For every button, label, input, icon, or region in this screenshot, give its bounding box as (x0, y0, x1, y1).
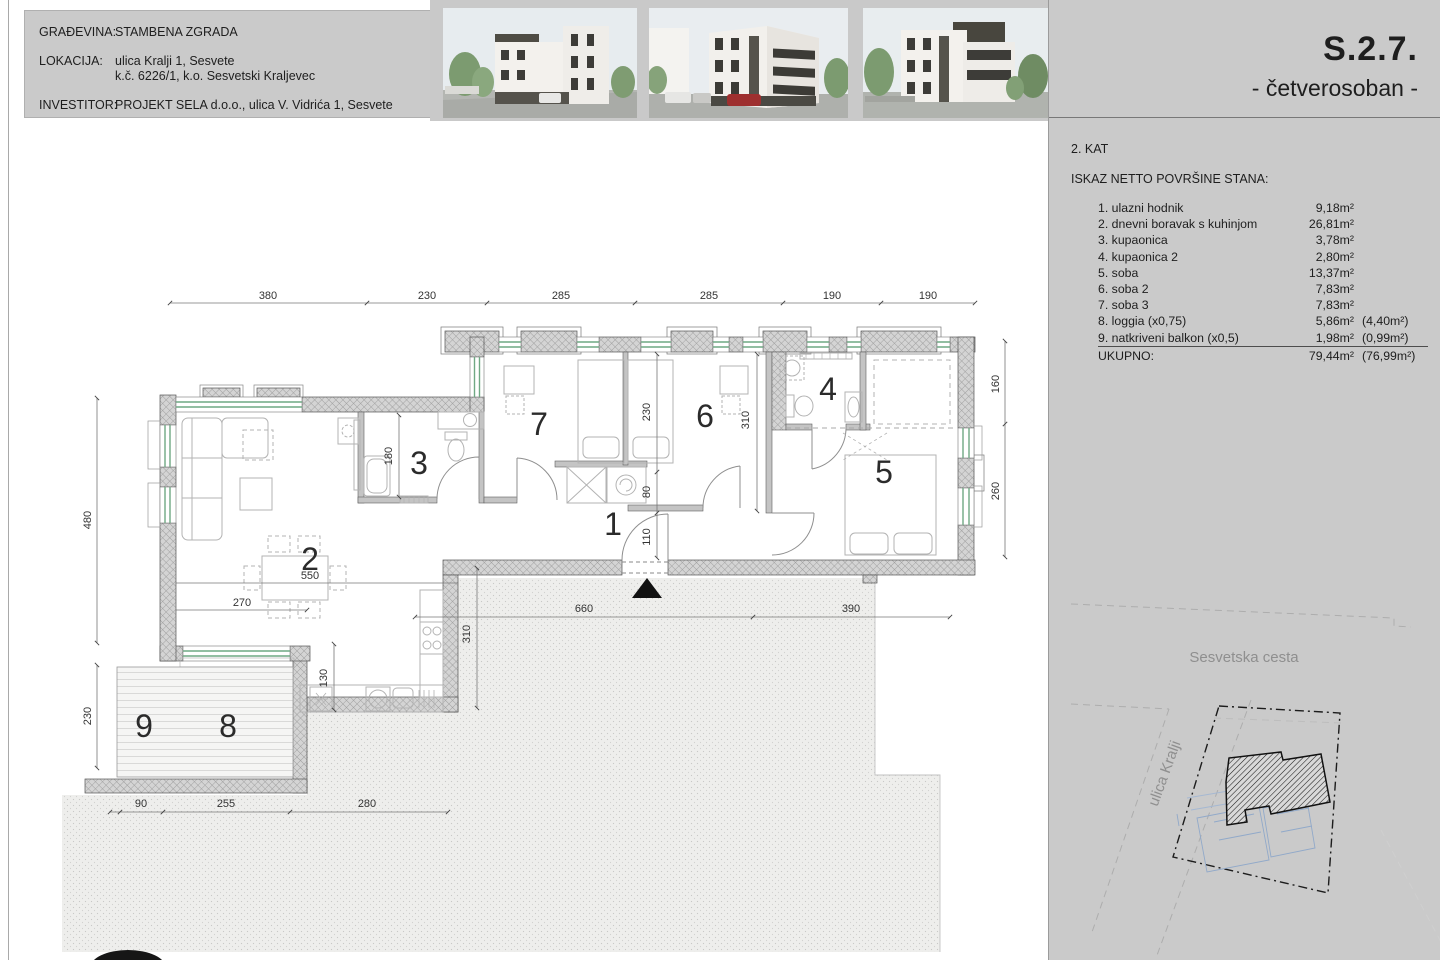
room5-furniture (843, 360, 950, 555)
table-row: 3. kupaonica3,78m² (1098, 232, 1428, 248)
tall-cabinet (338, 418, 358, 444)
site-plan: Sesvetska cesta ulica Kralji (1049, 570, 1440, 960)
sofa (182, 418, 268, 540)
svg-text:380: 380 (259, 290, 277, 302)
room-label-bath1: 3 (410, 445, 428, 481)
render-photo-2 (649, 8, 848, 118)
svg-text:660: 660 (575, 603, 593, 615)
hall-closets (567, 467, 646, 503)
investor-value: PROJEKT SELA d.o.o., ulica V. Vidrića 1,… (115, 98, 393, 113)
svg-text:285: 285 (552, 290, 570, 302)
svg-text:390: 390 (842, 603, 860, 615)
room-label-bedroom2: 6 (696, 398, 714, 434)
table-row: 4. kupaonica 22,80m² (1098, 249, 1428, 265)
svg-text:255: 255 (217, 798, 235, 810)
project-info-box: GRAĐEVINA: STAMBENA ZGRADA LOKACIJA: uli… (24, 10, 432, 118)
location-value: ulica Kralji 1, Sesvete (115, 54, 235, 69)
svg-text:310: 310 (461, 625, 473, 643)
svg-text:130: 130 (318, 669, 330, 687)
svg-text:280: 280 (358, 798, 376, 810)
room-label-bedroom1: 5 (875, 454, 893, 490)
table-row: 7. soba 37,83m² (1098, 297, 1428, 313)
location-label: LOKACIJA: (39, 54, 115, 69)
svg-text:480: 480 (82, 511, 94, 529)
table-row: 8. loggia (x0,75)5,86m²(4,40m²) (1098, 313, 1428, 329)
svg-text:285: 285 (700, 290, 718, 302)
room-label-bedroom3: 7 (530, 406, 548, 442)
floor-label: 2. KAT (1071, 142, 1108, 156)
table-row: 9. natkriveni balkon (x0,5)1,98m²(0,99m²… (1098, 330, 1428, 347)
render-strip (430, 0, 1052, 121)
room-label-loggia: 8 (219, 708, 237, 744)
street-name-left: ulica Kralji (1145, 738, 1184, 808)
svg-text:110: 110 (641, 528, 653, 546)
table-row: 1. ulazni hodnik9,18m² (1098, 200, 1428, 216)
title-panel: S.2.7. - četverosoban - 2. KAT ISKAZ NET… (1048, 0, 1440, 960)
investor-label: INVESTITOR: (39, 98, 115, 113)
area-list-title: ISKAZ NETTO POVRŠINE STANA: (1071, 172, 1269, 186)
table-total-row: UKUPNO:79,44m²(76,99m²) (1098, 348, 1428, 364)
room-label-balcony: 9 (135, 708, 153, 744)
svg-text:180: 180 (383, 447, 395, 465)
street-name-top: Sesvetska cesta (1189, 649, 1299, 666)
table-row: 5. soba13,37m² (1098, 265, 1428, 281)
area-table: 1. ulazni hodnik9,18m² 2. dnevni boravak… (1098, 200, 1428, 364)
drawing-sheet: 380 230 285 285 190 190 480 230 160 260 … (0, 0, 1440, 960)
room-label-bath2: 4 (819, 371, 837, 407)
svg-text:260: 260 (990, 482, 1002, 500)
svg-text:230: 230 (418, 290, 436, 302)
coffee-table (240, 478, 272, 510)
kitchen (300, 590, 443, 712)
svg-text:160: 160 (990, 375, 1002, 393)
svg-text:80: 80 (641, 486, 653, 498)
render-photo-3 (863, 8, 1050, 118)
floor-plan: 380 230 285 285 190 190 480 230 160 260 … (0, 0, 1045, 960)
table-row: 6. soba 27,83m² (1098, 281, 1428, 297)
render-photo-1 (443, 8, 637, 118)
svg-text:270: 270 (233, 597, 251, 609)
room-label-hall: 1 (604, 506, 622, 542)
svg-text:90: 90 (135, 798, 147, 810)
apartment-type: - četverosoban - (1252, 75, 1418, 102)
panel-divider (1049, 117, 1440, 118)
building-value: STAMBENA ZGRADA (115, 25, 238, 40)
svg-text:230: 230 (641, 403, 653, 421)
location-value-2: k.č. 6226/1, k.o. Sesvetski Kraljevec (115, 69, 315, 84)
svg-text:190: 190 (919, 290, 937, 302)
room-label-living: 2 (301, 541, 319, 577)
svg-text:310: 310 (740, 411, 752, 429)
building-label: GRAĐEVINA: (39, 25, 115, 40)
table-row: 2. dnevni boravak s kuhinjom26,81m² (1098, 216, 1428, 232)
svg-text:230: 230 (82, 707, 94, 725)
dining-table (244, 536, 346, 618)
apartment-code: S.2.7. (1252, 30, 1418, 69)
svg-text:190: 190 (823, 290, 841, 302)
room7-furniture (504, 360, 624, 463)
